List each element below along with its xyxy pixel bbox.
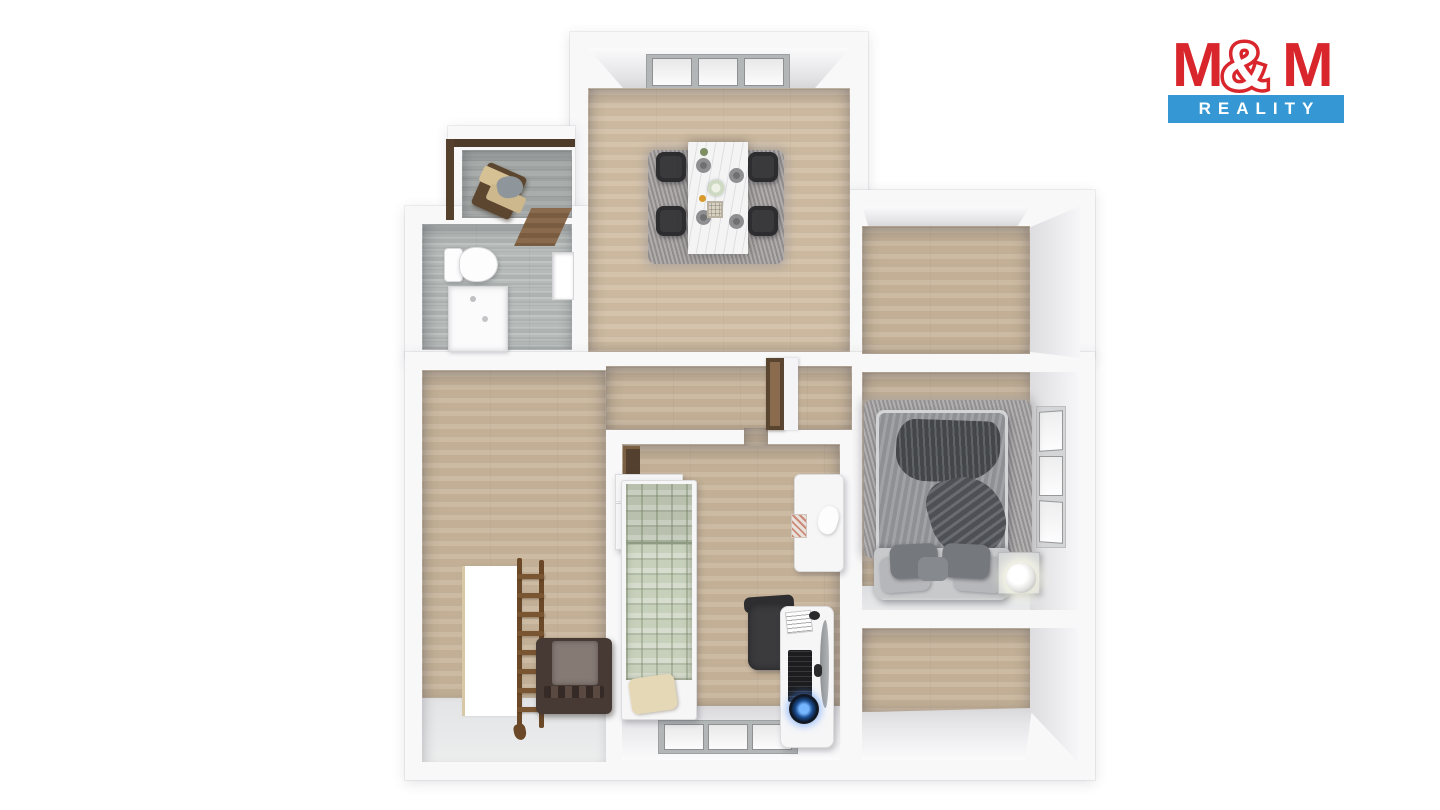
svg-text:M: M xyxy=(1282,31,1334,94)
mm-reality-logo: M M & REALITY xyxy=(1168,24,1344,123)
kids-window-pane xyxy=(708,724,748,750)
kids-window-pane xyxy=(664,724,704,750)
bedroom-window-pane xyxy=(1039,456,1063,496)
juice-glass xyxy=(699,195,706,202)
dining-chair xyxy=(656,206,686,236)
kids-window-recess xyxy=(658,720,798,754)
upper-right-room-wall-face xyxy=(862,206,1030,228)
upper-right-room-floor xyxy=(862,226,1030,354)
dining-window-pane xyxy=(652,58,692,86)
logo-mm-svg: M M & xyxy=(1170,26,1342,94)
mouse xyxy=(814,664,822,677)
entry-door-frame-left xyxy=(446,139,454,220)
herb-pot xyxy=(700,148,708,156)
pillow-dark xyxy=(941,543,991,579)
dining-chair xyxy=(656,152,686,182)
floor-plan-render: M M & REALITY xyxy=(0,0,1440,810)
flower-vase xyxy=(708,180,724,196)
dining-window-recess xyxy=(646,54,790,90)
dining-chair xyxy=(748,152,778,182)
pc-tower-fan xyxy=(789,694,819,724)
dining-table xyxy=(688,142,748,254)
logo-mm: M M & xyxy=(1168,24,1344,95)
logo-reality-text: REALITY xyxy=(1192,99,1321,119)
entry-door-frame-top xyxy=(446,139,575,147)
shower-drain xyxy=(482,316,488,322)
upper-right-room-wall-face-right xyxy=(1030,206,1080,358)
kids-room-door-opening xyxy=(744,428,768,446)
svg-text:M: M xyxy=(1172,31,1224,94)
plate xyxy=(696,158,711,173)
round-lamp xyxy=(1006,563,1036,593)
svg-text:&: & xyxy=(1221,29,1269,94)
bottom-right-room-floor xyxy=(862,628,1032,712)
bottom-right-room-wall-face xyxy=(862,708,1032,760)
corridor-floor xyxy=(606,366,852,430)
headset xyxy=(809,611,820,620)
bathroom-niche xyxy=(552,252,574,300)
dining-window-pane xyxy=(744,58,784,86)
door-frame xyxy=(766,358,784,430)
armchair-tufted-edge xyxy=(544,686,604,698)
plate xyxy=(729,214,744,229)
bedroom-window-pane xyxy=(1039,410,1063,452)
bread-basket xyxy=(707,201,723,218)
stairwell-opening xyxy=(462,566,521,716)
door-wall-stub xyxy=(784,358,798,430)
shower-drain xyxy=(470,296,476,302)
monitor-top-view xyxy=(820,620,829,708)
plate xyxy=(729,168,744,183)
toilet-bowl xyxy=(459,247,498,282)
kids-bed-duvet-fold xyxy=(626,484,692,544)
patterned-cloth xyxy=(791,514,807,538)
kids-bed-pillow xyxy=(628,673,679,715)
dining-chair xyxy=(748,206,778,236)
dining-window-pane xyxy=(698,58,738,86)
logo-reality-bar: REALITY xyxy=(1168,95,1344,123)
bedroom-window-pane xyxy=(1039,500,1063,544)
pillow-small xyxy=(918,557,948,581)
armchair-back-cushion xyxy=(552,641,598,685)
shower-tray xyxy=(448,286,508,352)
